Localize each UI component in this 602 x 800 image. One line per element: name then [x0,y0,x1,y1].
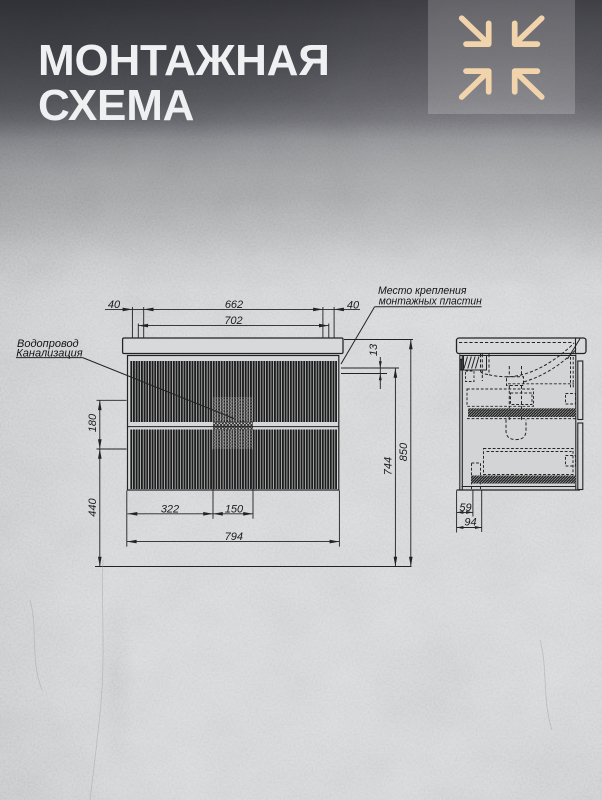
svg-text:794: 794 [225,531,243,543]
svg-text:662: 662 [225,299,243,311]
svg-text:850: 850 [398,442,410,461]
svg-text:94: 94 [464,517,476,529]
svg-text:59: 59 [459,502,471,514]
svg-text:40: 40 [108,299,121,311]
svg-text:40: 40 [347,300,360,312]
svg-text:322: 322 [161,503,179,515]
svg-text:150: 150 [225,503,244,515]
svg-text:180: 180 [87,413,99,432]
svg-text:13: 13 [368,343,380,356]
svg-text:монтажных пластин: монтажных пластин [379,296,482,308]
svg-text:440: 440 [87,497,99,516]
svg-text:702: 702 [224,315,242,327]
svg-text:744: 744 [383,457,395,475]
